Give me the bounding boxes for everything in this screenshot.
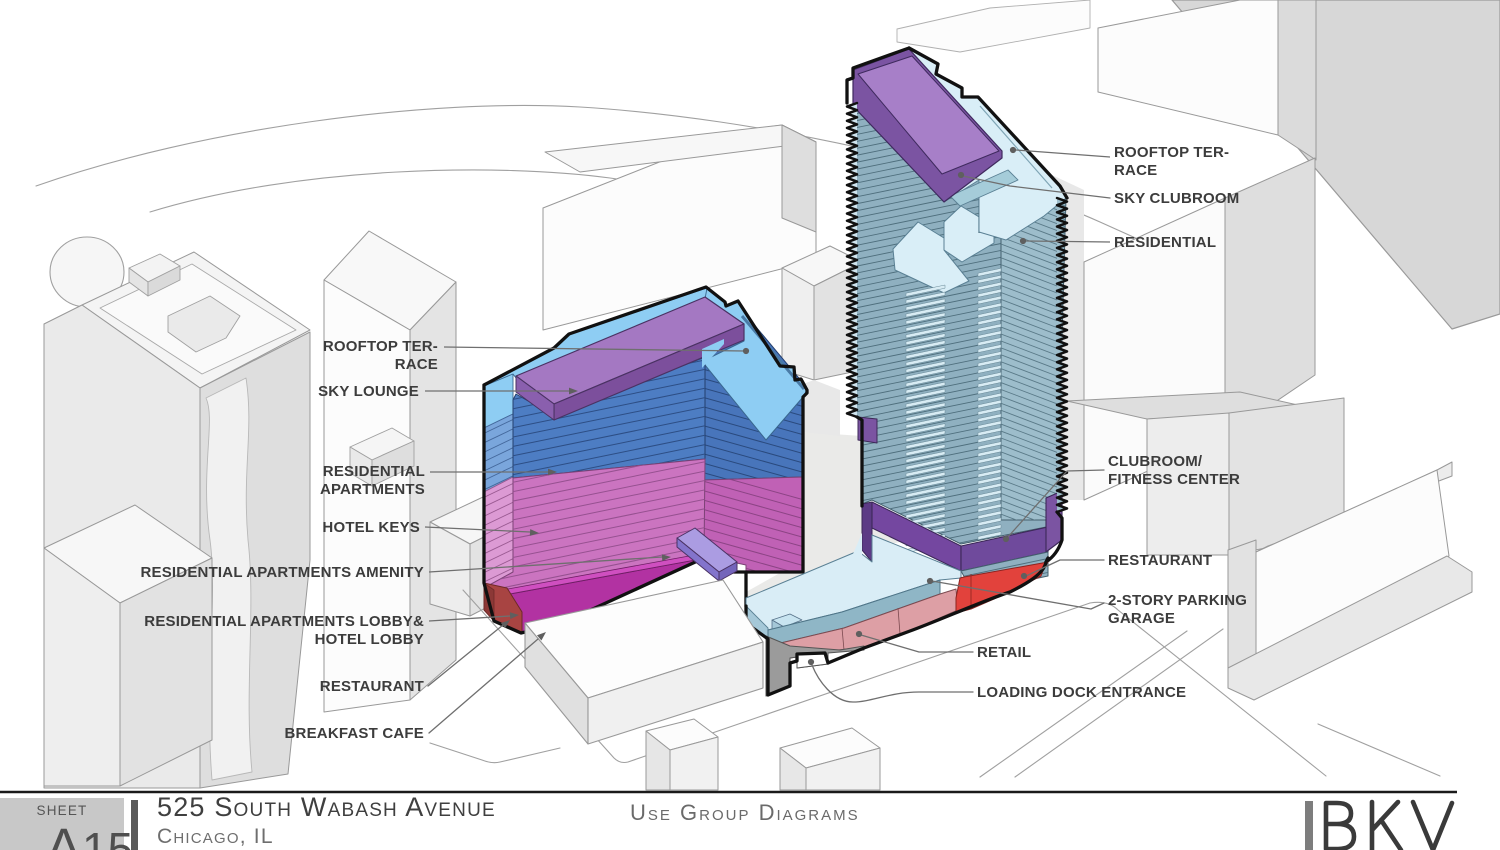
svg-text:HOTEL LOBBY: HOTEL LOBBY <box>315 631 424 648</box>
svg-text:FITNESS CENTER: FITNESS CENTER <box>1108 471 1240 488</box>
svg-text:2-STORY PARKING: 2-STORY PARKING <box>1108 592 1247 609</box>
svg-text:ROOFTOP TER-: ROOFTOP TER- <box>1114 144 1229 161</box>
svg-text:RACE: RACE <box>395 356 438 373</box>
svg-text:RESIDENTIAL APARTMENTS AMENITY: RESIDENTIAL APARTMENTS AMENITY <box>140 564 424 581</box>
svg-text:525 South Wabash Avenue: 525 South Wabash Avenue <box>157 792 496 822</box>
svg-text:CLUBROOM/: CLUBROOM/ <box>1108 453 1203 470</box>
svg-text:A: A <box>46 818 82 850</box>
svg-text:Use Group Diagrams: Use Group Diagrams <box>630 800 860 825</box>
svg-text:GARAGE: GARAGE <box>1108 610 1175 627</box>
svg-text:RESIDENTIAL: RESIDENTIAL <box>323 463 425 480</box>
svg-text:LOADING DOCK ENTRANCE: LOADING DOCK ENTRANCE <box>977 684 1186 701</box>
svg-text:RACE: RACE <box>1114 162 1157 179</box>
svg-text:BREAKFAST CAFE: BREAKFAST CAFE <box>285 725 424 742</box>
svg-text:RESTAURANT: RESTAURANT <box>320 678 424 695</box>
svg-text:SKY LOUNGE: SKY LOUNGE <box>318 383 419 400</box>
svg-text:SKY CLUBROOM: SKY CLUBROOM <box>1114 190 1239 207</box>
svg-text:RESIDENTIAL: RESIDENTIAL <box>1114 234 1216 251</box>
svg-text:SHEET: SHEET <box>36 803 87 818</box>
svg-text:ROOFTOP TER-: ROOFTOP TER- <box>323 338 438 355</box>
svg-text:RESIDENTIAL APARTMENTS LOBBY&: RESIDENTIAL APARTMENTS LOBBY& <box>144 613 424 630</box>
svg-text:15: 15 <box>82 823 133 850</box>
svg-text:Chicago, IL: Chicago, IL <box>157 825 274 848</box>
svg-text:RETAIL: RETAIL <box>977 644 1031 661</box>
svg-text:APARTMENTS: APARTMENTS <box>320 481 425 498</box>
svg-text:RESTAURANT: RESTAURANT <box>1108 552 1212 569</box>
svg-text:HOTEL KEYS: HOTEL KEYS <box>322 519 420 536</box>
